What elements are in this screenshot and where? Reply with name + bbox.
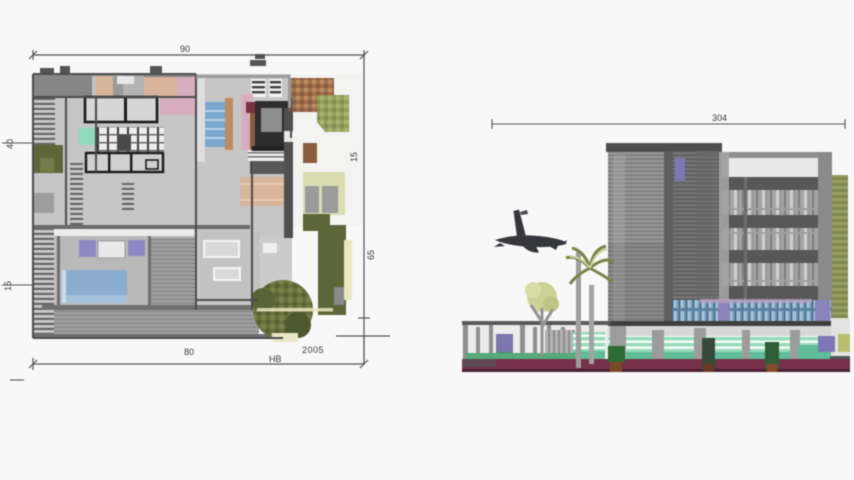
- svg-text:40: 40: [5, 139, 15, 149]
- svg-text:2005: 2005: [302, 345, 324, 355]
- svg-text:65: 65: [366, 250, 376, 260]
- svg-text:15: 15: [3, 281, 13, 291]
- svg-text:80: 80: [184, 347, 194, 357]
- svg-text:90: 90: [180, 44, 190, 54]
- svg-text:15: 15: [349, 152, 359, 162]
- svg-text:HB: HB: [269, 354, 282, 364]
- svg-text:304: 304: [712, 113, 727, 123]
